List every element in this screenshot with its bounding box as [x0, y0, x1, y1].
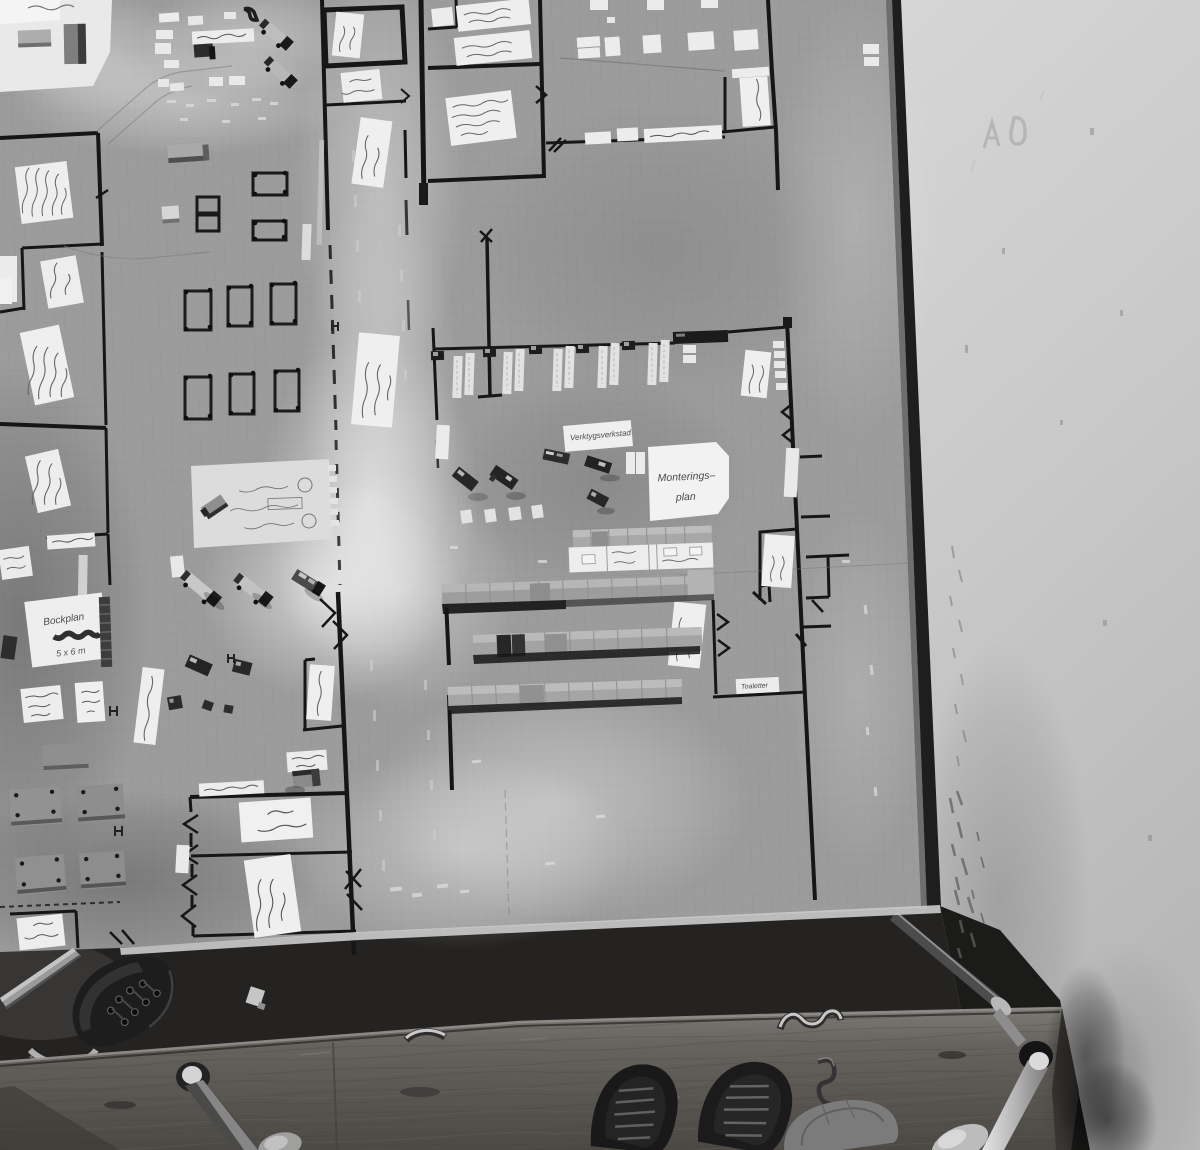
svg-text:plan: plan: [675, 491, 697, 504]
svg-text:Toaletter: Toaletter: [741, 682, 769, 690]
